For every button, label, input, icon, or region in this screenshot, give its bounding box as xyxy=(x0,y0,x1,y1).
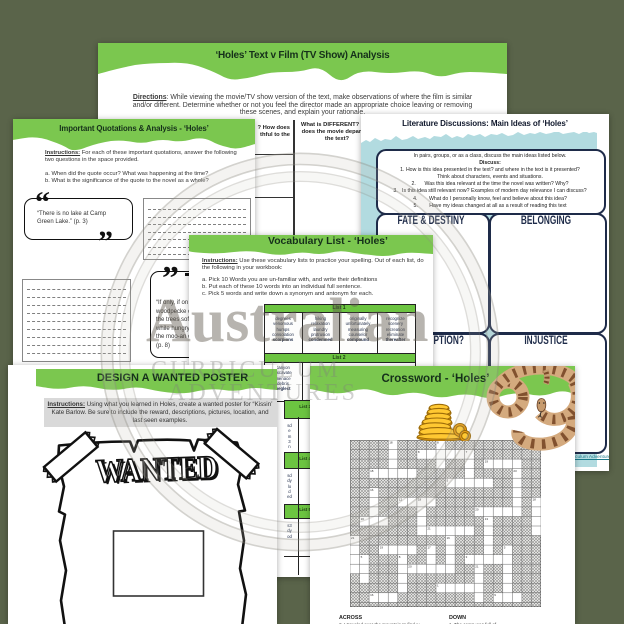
svg-text:18: 18 xyxy=(389,440,393,444)
svg-text:18: 18 xyxy=(418,498,422,502)
svg-text:18: 18 xyxy=(370,469,374,473)
svg-text:17: 17 xyxy=(427,546,431,550)
svg-text:21: 21 xyxy=(427,526,431,530)
svg-text:23: 23 xyxy=(513,469,517,473)
svg-text:20: 20 xyxy=(475,507,479,511)
svg-text:16: 16 xyxy=(361,517,365,521)
svg-text:12: 12 xyxy=(399,498,403,502)
svg-text:18: 18 xyxy=(533,498,537,502)
svg-text:WANTED: WANTED xyxy=(95,449,218,490)
svg-text:16: 16 xyxy=(447,536,451,540)
svg-text:21: 21 xyxy=(475,565,479,569)
svg-text:19: 19 xyxy=(485,460,489,464)
svg-text:13: 13 xyxy=(485,517,489,521)
svg-text:19: 19 xyxy=(380,546,384,550)
svg-text:20: 20 xyxy=(408,565,412,569)
svg-text:21: 21 xyxy=(351,536,355,540)
svg-text:16: 16 xyxy=(370,488,374,492)
svg-text:16: 16 xyxy=(370,593,374,597)
